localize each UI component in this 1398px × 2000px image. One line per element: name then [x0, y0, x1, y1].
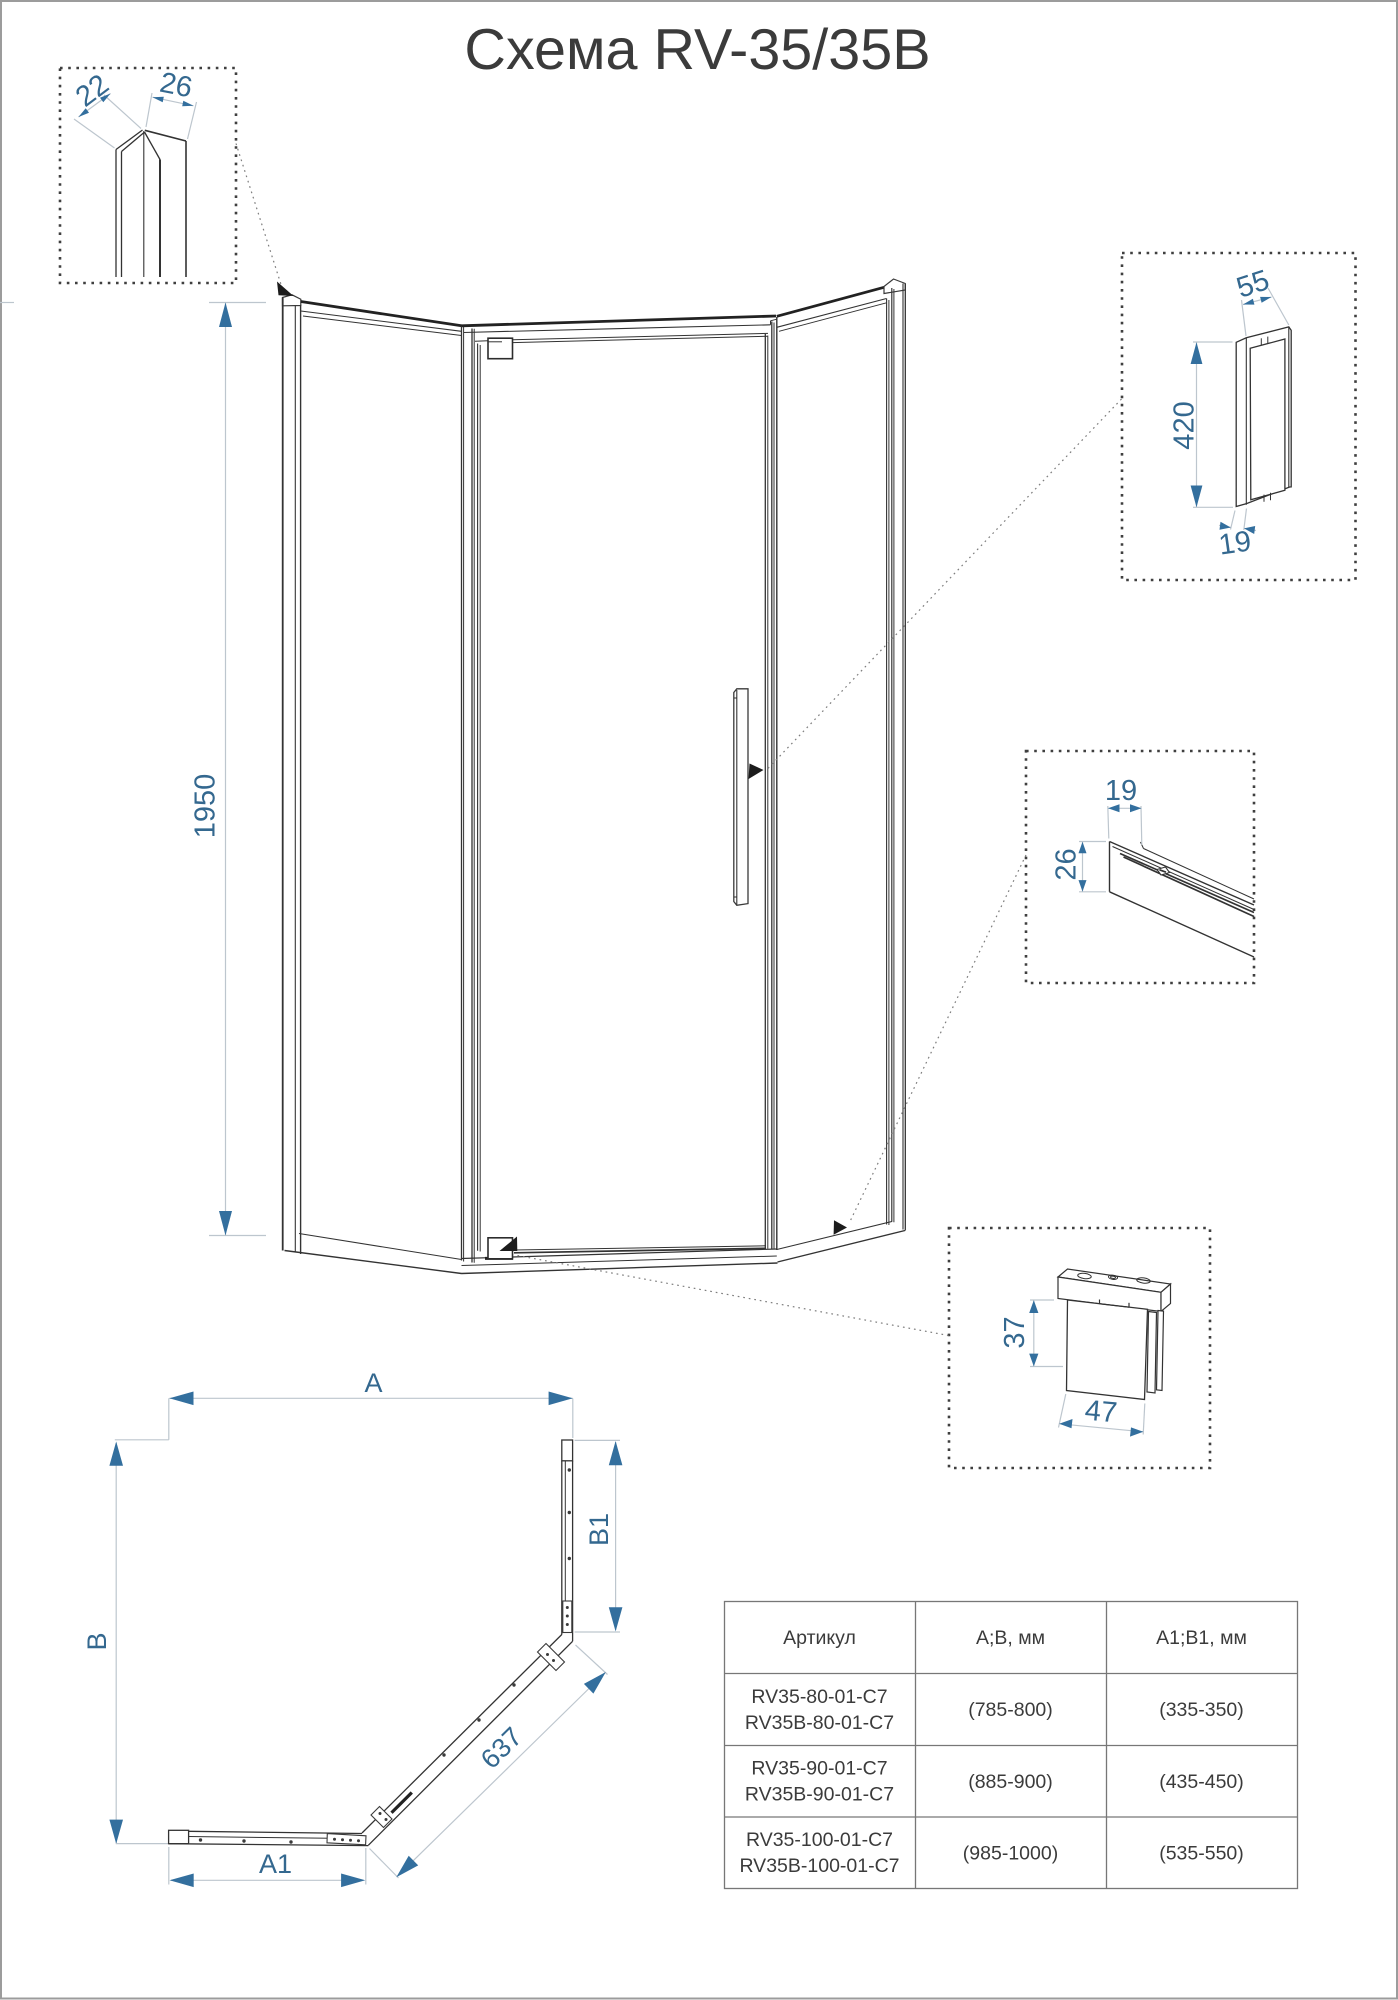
svg-text:RV35B-100-01-C7: RV35B-100-01-C7 [739, 1855, 899, 1877]
svg-text:A: A [364, 1368, 382, 1398]
svg-text:RV35-80-01-C7: RV35-80-01-C7 [751, 1686, 887, 1708]
svg-text:19: 19 [1217, 525, 1253, 561]
svg-text:420: 420 [1169, 401, 1201, 449]
svg-text:26: 26 [1051, 848, 1083, 880]
svg-text:Схема RV-35/35B: Схема RV-35/35B [464, 18, 930, 82]
svg-text:1950: 1950 [190, 774, 222, 839]
svg-text:RV35-100-01-C7: RV35-100-01-C7 [746, 1829, 893, 1851]
svg-text:(435-450): (435-450) [1159, 1771, 1244, 1793]
svg-text:47: 47 [1084, 1395, 1119, 1430]
svg-text:RV35-90-01-C7: RV35-90-01-C7 [751, 1758, 887, 1780]
svg-text:Артикул: Артикул [783, 1627, 856, 1649]
svg-text:RV35B-90-01-C7: RV35B-90-01-C7 [745, 1784, 894, 1806]
svg-text:37: 37 [999, 1316, 1031, 1348]
svg-text:(885-900): (885-900) [968, 1771, 1053, 1793]
svg-text:(535-550): (535-550) [1159, 1843, 1244, 1865]
svg-text:RV35B-80-01-C7: RV35B-80-01-C7 [745, 1712, 894, 1734]
svg-text:А;В, мм: А;В, мм [976, 1627, 1045, 1649]
svg-text:B: B [82, 1632, 112, 1650]
svg-text:(985-1000): (985-1000) [963, 1843, 1058, 1865]
svg-text:(785-800): (785-800) [968, 1699, 1053, 1721]
svg-text:26: 26 [157, 67, 195, 105]
svg-text:19: 19 [1105, 775, 1137, 807]
svg-text:А1;В1, мм: А1;В1, мм [1156, 1627, 1247, 1649]
svg-text:A1: A1 [259, 1849, 292, 1879]
svg-text:B1: B1 [584, 1513, 614, 1546]
svg-text:(335-350): (335-350) [1159, 1699, 1244, 1721]
